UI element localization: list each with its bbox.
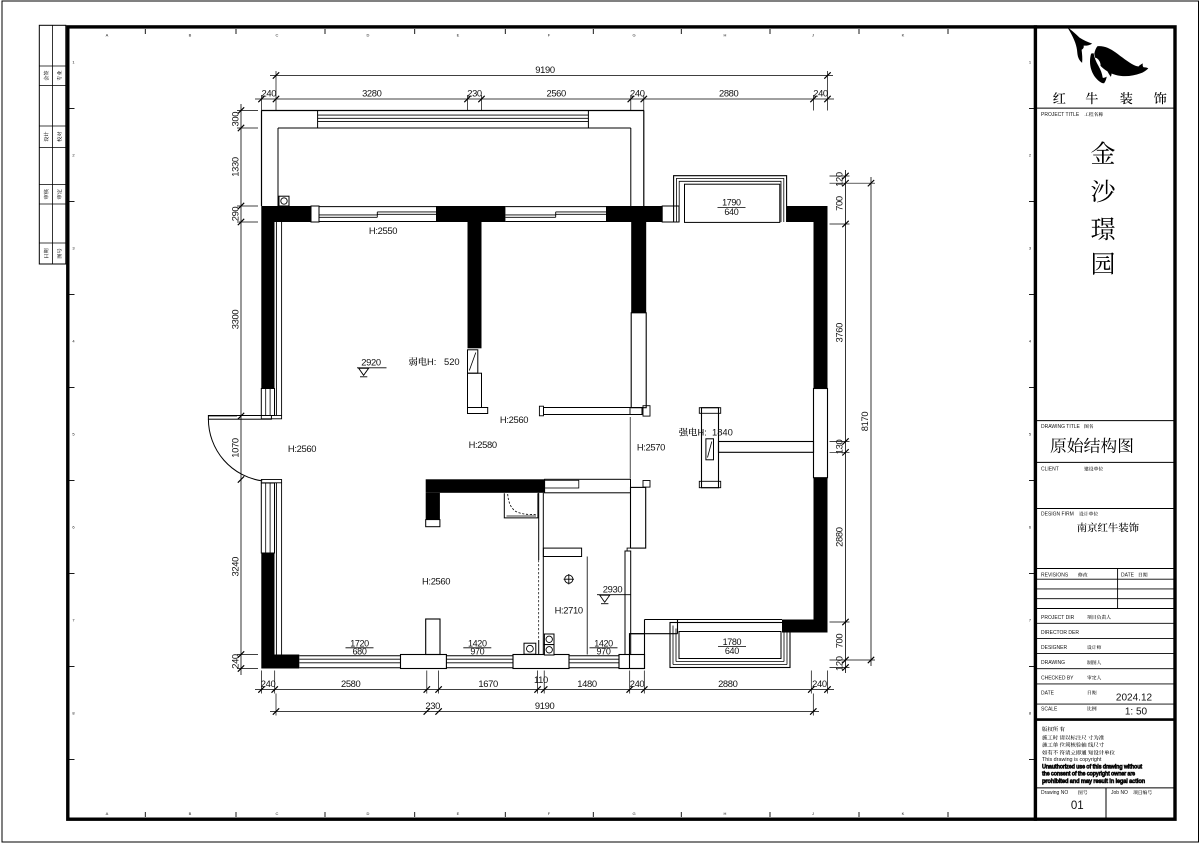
svg-text:3240: 3240 xyxy=(229,557,240,577)
svg-text:H:2560: H:2560 xyxy=(288,443,316,454)
svg-text:H:: H: xyxy=(427,356,436,367)
svg-text:E: E xyxy=(457,811,460,816)
svg-text:H: H xyxy=(724,811,727,816)
svg-text:2024.12: 2024.12 xyxy=(1116,693,1153,704)
svg-text:Job NO: Job NO xyxy=(1111,790,1128,796)
svg-text:REVISIONS: REVISIONS xyxy=(1041,573,1069,579)
svg-text:230: 230 xyxy=(467,87,482,98)
svg-text:DRAWING TITLE: DRAWING TITLE xyxy=(1041,424,1081,430)
svg-text:the consent of the copyright o: the consent of the copyright owner are xyxy=(1042,771,1136,778)
svg-text:Unauthorized use of this drawi: Unauthorized use of this drawing without xyxy=(1042,763,1143,770)
svg-text:2580: 2580 xyxy=(341,678,361,689)
svg-text:PROJECT DIR: PROJECT DIR xyxy=(1041,615,1075,621)
svg-text:1: 50: 1: 50 xyxy=(1125,707,1148,718)
svg-text:H:2560: H:2560 xyxy=(500,414,528,425)
svg-text:2880: 2880 xyxy=(719,87,739,98)
svg-text:K: K xyxy=(902,811,905,816)
svg-text:DATE: DATE xyxy=(1121,573,1135,579)
svg-text:970: 970 xyxy=(470,647,484,657)
svg-text:DESIGN FIRM: DESIGN FIRM xyxy=(1041,512,1074,518)
svg-text:9190: 9190 xyxy=(535,700,555,711)
svg-text:230: 230 xyxy=(425,700,440,711)
svg-text:120: 120 xyxy=(834,656,845,671)
svg-text:DATE: DATE xyxy=(1041,690,1055,696)
svg-text:9190: 9190 xyxy=(535,64,555,75)
svg-text:A: A xyxy=(106,33,109,38)
svg-text:970: 970 xyxy=(597,647,611,657)
svg-text:H:2580: H:2580 xyxy=(469,439,497,450)
svg-text:120: 120 xyxy=(834,172,845,187)
svg-text:8170: 8170 xyxy=(859,412,870,432)
svg-text:A: A xyxy=(106,811,109,816)
svg-text:700: 700 xyxy=(834,634,845,649)
svg-text:240: 240 xyxy=(630,87,645,98)
svg-text:240: 240 xyxy=(229,654,240,669)
svg-text:J: J xyxy=(812,33,814,38)
svg-text:240: 240 xyxy=(813,87,828,98)
svg-text:C: C xyxy=(276,811,279,816)
svg-text:240: 240 xyxy=(812,678,827,689)
svg-text:K: K xyxy=(902,33,905,38)
svg-text:1070: 1070 xyxy=(229,438,240,458)
svg-text:G: G xyxy=(632,811,635,816)
svg-text:C: C xyxy=(276,33,279,38)
svg-text:CHECKED BY: CHECKED BY xyxy=(1041,675,1074,681)
svg-text:H:2560: H:2560 xyxy=(422,576,450,587)
svg-text:E: E xyxy=(457,33,460,38)
svg-text:240: 240 xyxy=(630,678,645,689)
svg-text:2880: 2880 xyxy=(834,527,845,547)
svg-text:300: 300 xyxy=(229,112,240,127)
svg-text:290: 290 xyxy=(229,207,240,222)
svg-text:1670: 1670 xyxy=(478,678,498,689)
svg-text:B: B xyxy=(189,33,192,38)
svg-text:3300: 3300 xyxy=(229,310,240,330)
svg-text:This drawing is copyright: This drawing is copyright xyxy=(1042,757,1102,763)
svg-text:1480: 1480 xyxy=(577,678,597,689)
svg-text:CLIENT: CLIENT xyxy=(1041,467,1059,473)
svg-text:240: 240 xyxy=(261,678,276,689)
svg-text:B: B xyxy=(189,811,192,816)
svg-text:130: 130 xyxy=(834,439,845,454)
svg-text:3280: 3280 xyxy=(362,87,382,98)
svg-text:prohibited and may result in l: prohibited and may result in legal actio… xyxy=(1042,778,1145,785)
svg-text:H: H xyxy=(724,33,727,38)
svg-text:1840: 1840 xyxy=(712,427,733,438)
svg-text:640: 640 xyxy=(724,207,738,217)
svg-text:640: 640 xyxy=(725,646,739,656)
svg-text:2880: 2880 xyxy=(718,678,738,689)
svg-text:2560: 2560 xyxy=(546,87,566,98)
svg-text:PROJECT TITLE: PROJECT TITLE xyxy=(1041,112,1080,118)
svg-text:1330: 1330 xyxy=(229,157,240,177)
svg-text:DESIGNER: DESIGNER xyxy=(1041,645,1068,651)
svg-text:3760: 3760 xyxy=(834,323,845,343)
svg-text:J: J xyxy=(812,811,814,816)
svg-text:D: D xyxy=(367,33,370,38)
svg-text:680: 680 xyxy=(353,647,367,657)
svg-text:D: D xyxy=(367,811,370,816)
svg-text:2920: 2920 xyxy=(361,356,381,367)
svg-text:SCALE: SCALE xyxy=(1041,706,1058,712)
svg-text:H:2550: H:2550 xyxy=(369,225,397,236)
svg-text:DIRECTOR DER: DIRECTOR DER xyxy=(1041,630,1079,636)
svg-text:240: 240 xyxy=(262,87,277,98)
svg-text:Drawing NO: Drawing NO xyxy=(1041,790,1068,796)
svg-text:01: 01 xyxy=(1071,800,1084,812)
svg-text:110: 110 xyxy=(534,674,548,685)
svg-text:H:2570: H:2570 xyxy=(637,441,665,452)
svg-text:DRAWING: DRAWING xyxy=(1041,660,1065,666)
svg-text:H:2710: H:2710 xyxy=(555,604,583,615)
svg-text:H:: H: xyxy=(698,427,707,438)
svg-text:700: 700 xyxy=(834,196,845,211)
svg-text:520: 520 xyxy=(444,356,460,367)
svg-text:2930: 2930 xyxy=(603,584,623,595)
svg-text:G: G xyxy=(632,33,635,38)
